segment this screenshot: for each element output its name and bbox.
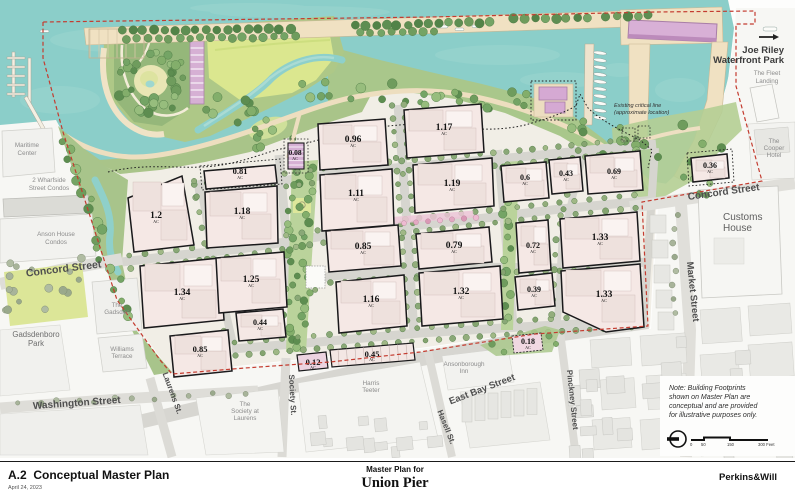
svg-text:Landing: Landing [756, 78, 779, 85]
svg-text:Park: Park [28, 339, 44, 348]
svg-text:AC: AC [449, 187, 455, 192]
svg-text:AC: AC [239, 215, 245, 220]
svg-text:AC: AC [292, 156, 298, 161]
svg-text:Terrace: Terrace [112, 353, 133, 360]
svg-text:AC: AC [601, 298, 607, 303]
svg-text:Condos: Condos [45, 239, 67, 246]
svg-text:Union Pier: Union Pier [361, 475, 429, 491]
svg-text:AC: AC [368, 303, 374, 308]
svg-text:Note: Building Footprints: Note: Building Footprints [669, 385, 746, 392]
svg-text:AC: AC [353, 197, 359, 202]
svg-text:AC: AC [611, 175, 617, 180]
svg-text:Gadsden: Gadsden [104, 309, 130, 316]
svg-text:Laurens: Laurens [234, 415, 257, 422]
svg-text:Street Condos: Street Condos [29, 185, 69, 192]
svg-text:AC: AC [525, 345, 531, 350]
svg-text:AC: AC [350, 143, 356, 148]
svg-text:AC: AC [179, 296, 185, 301]
svg-text:conceptual and are provided: conceptual and are provided [669, 403, 758, 410]
svg-text:AC: AC [197, 353, 203, 358]
svg-text:for illustrative purposes only: for illustrative purposes only. [669, 412, 757, 419]
svg-text:Harris: Harris [363, 380, 380, 387]
svg-text:The: The [240, 401, 251, 408]
svg-text:AC: AC [237, 175, 243, 180]
svg-text:(approximate location): (approximate location) [614, 110, 669, 116]
svg-text:2 Wharfside: 2 Wharfside [32, 177, 66, 184]
svg-text:House: House [723, 223, 752, 234]
svg-text:The Fleet: The Fleet [754, 70, 781, 77]
svg-text:AC: AC [441, 131, 447, 136]
svg-text:AC: AC [531, 293, 537, 298]
svg-text:AC: AC [530, 249, 536, 254]
svg-text:Cooper: Cooper [764, 145, 785, 152]
svg-text:Hotel: Hotel [767, 152, 782, 159]
svg-text:Waterfront Park: Waterfront Park [713, 55, 785, 66]
svg-text:AC: AC [458, 295, 464, 300]
svg-text:April 24, 2023: April 24, 2023 [8, 485, 42, 491]
svg-text:Gadsdenboro: Gadsdenboro [12, 330, 60, 339]
svg-text:AC: AC [248, 283, 254, 288]
svg-text:Perkins&Will: Perkins&Will [719, 472, 777, 483]
svg-text:Ansonborough: Ansonborough [444, 361, 485, 368]
svg-text:A.2 Conceptual Master Plan: A.2 Conceptual Master Plan [8, 468, 169, 482]
svg-text:AC: AC [153, 219, 159, 224]
svg-text:150: 150 [727, 442, 735, 447]
svg-text:AC: AC [563, 177, 569, 182]
svg-text:Maritime: Maritime [15, 142, 40, 149]
svg-text:AC: AC [360, 250, 366, 255]
svg-text:Existing critical line: Existing critical line [614, 103, 661, 109]
svg-text:Williams: Williams [110, 346, 133, 353]
svg-text:50: 50 [701, 442, 706, 447]
svg-text:Customs: Customs [723, 212, 762, 223]
svg-text:shown on Master Plan are: shown on Master Plan are [669, 394, 750, 401]
svg-text:Inn: Inn [460, 368, 469, 375]
svg-text:AC: AC [310, 365, 316, 370]
svg-text:Teeter: Teeter [362, 387, 380, 394]
svg-text:AC: AC [597, 241, 603, 246]
svg-text:Master Plan for: Master Plan for [366, 465, 424, 474]
svg-text:AC: AC [257, 326, 263, 331]
svg-text:Anson House: Anson House [37, 231, 75, 238]
svg-text:AC: AC [707, 169, 713, 174]
svg-text:AC: AC [451, 249, 457, 254]
svg-text:The: The [112, 302, 123, 309]
svg-text:The: The [769, 138, 780, 145]
svg-text:Center: Center [18, 150, 37, 157]
svg-text:300 Feet: 300 Feet [758, 442, 775, 447]
svg-text:AC: AC [522, 181, 528, 186]
svg-text:Society at: Society at [231, 408, 259, 415]
